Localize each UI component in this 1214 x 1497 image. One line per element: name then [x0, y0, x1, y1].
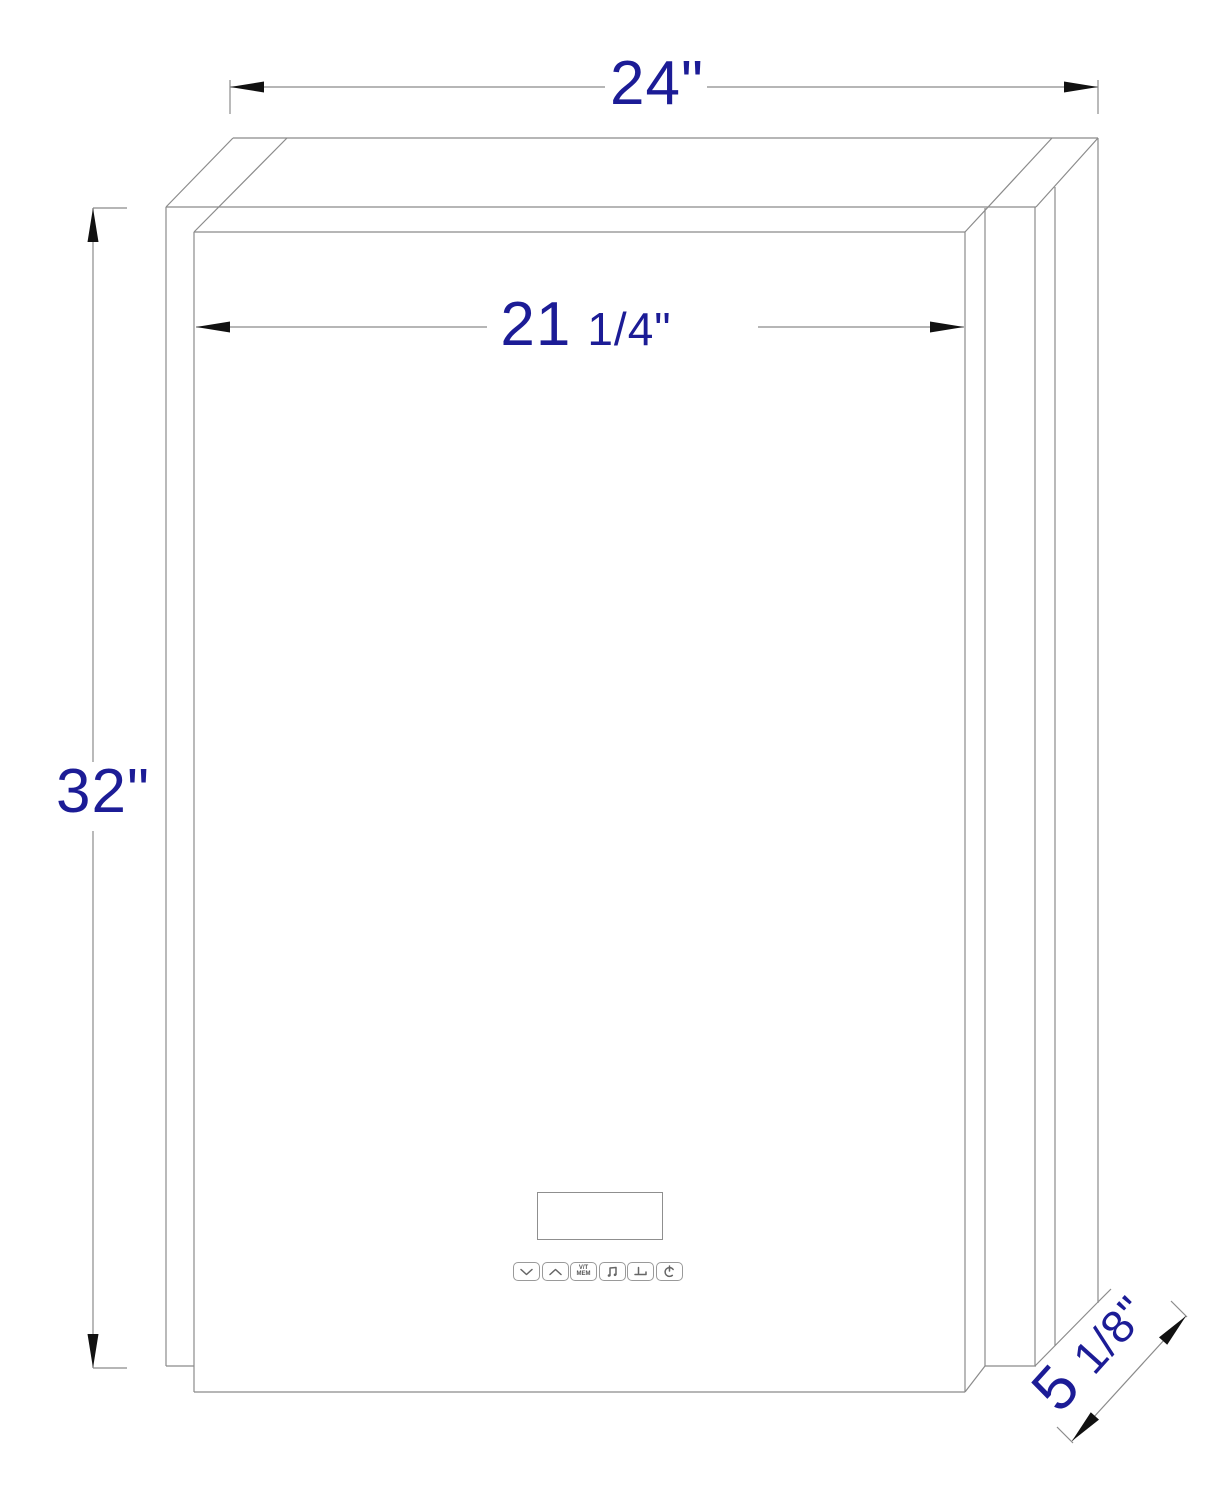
button-power: [656, 1262, 683, 1281]
button-defogger: [627, 1262, 654, 1281]
button-music: [599, 1262, 626, 1281]
button-chevron-down: [513, 1262, 540, 1281]
vt-mem-label: V/T MEM: [577, 1266, 591, 1277]
button-vt-mem: V/T MEM: [570, 1262, 597, 1281]
face-width-main: 21: [500, 294, 571, 356]
lcd-display: [537, 1192, 663, 1240]
height-value: 32": [56, 761, 150, 823]
dim-overall-width-label: 24": [610, 53, 704, 115]
power-icon: [662, 1265, 677, 1278]
button-chevron-up: [542, 1262, 569, 1281]
dim-height-label: 32": [56, 761, 150, 823]
overall-width-value: 24": [610, 53, 704, 115]
music-note-icon: [604, 1265, 621, 1278]
chevron-up-icon: [547, 1266, 564, 1278]
dimension-drawing: 24" 21 1/4" 32" 5 1/8" V/T MEM: [0, 0, 1214, 1497]
vt-mem-label-bottom: MEM: [577, 1272, 591, 1278]
chevron-down-icon: [518, 1266, 535, 1278]
dim-face-width-label: 21 1/4": [500, 294, 671, 356]
defogger-icon: [632, 1265, 649, 1278]
face-width-fraction: 1/4": [587, 306, 671, 352]
